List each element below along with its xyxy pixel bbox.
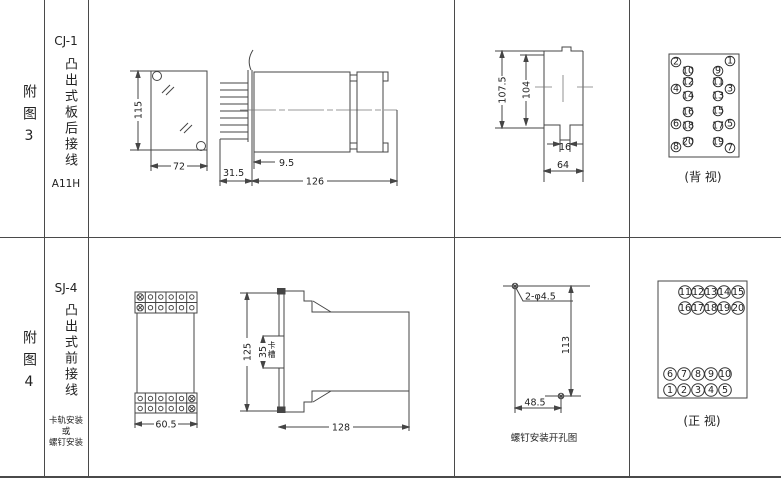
terminal-pin-number: 16 — [682, 106, 694, 117]
terminal-pin-number: 1 — [727, 55, 733, 66]
relay-case — [137, 313, 194, 393]
terminal-pin-number: 14 — [682, 90, 694, 101]
dim-125: 125 — [243, 343, 254, 361]
mounting-plate — [279, 291, 284, 412]
terminal-pin-number: 6 — [667, 369, 673, 380]
terminal-pin-number: 3 — [695, 385, 701, 396]
terminal-pin-number: 3 — [727, 83, 733, 94]
terminal-pin-number: 11 — [712, 76, 724, 87]
terminal-pin-number: 8 — [695, 369, 701, 380]
dim-126: 126 — [306, 177, 324, 188]
dim-16: 16 — [559, 142, 571, 153]
sj4-terminal-front-view: 1112131415161718192067891012345 — [658, 281, 747, 398]
terminal-pin-number: 5 — [722, 385, 728, 396]
screw-terminal-icon — [189, 395, 195, 401]
terminal-pin-number: 19 — [718, 303, 730, 314]
terminal-pin-number: 16 — [679, 303, 691, 314]
terminal-pin-number: 4 — [673, 83, 679, 94]
terminal-pin-number: 9 — [708, 369, 714, 380]
terminal-pin-group: 1112131415161718192067891012345 — [664, 286, 745, 397]
dim-104: 104 — [522, 81, 533, 99]
engineering-drawing-canvas: .dim{marker-start:url(#ar);marker-end:ur… — [0, 0, 781, 482]
terminal-pin-number: 19 — [712, 136, 724, 147]
terminal-pin-number: 7 — [727, 142, 733, 153]
terminal-pin-number: 5 — [727, 118, 733, 129]
figure-sheet: 附图3 CJ-1 凸出式板后接线 A11H (背 视) 附图4 SJ-4 凸出式… — [0, 0, 781, 482]
terminal-pin-number: 6 — [673, 118, 679, 129]
terminal-pin-number: 17 — [712, 120, 724, 131]
cj1-side-view-drawing: 9.5 31.5 126 — [220, 50, 397, 188]
terminal-pin-group: 2110912114314131615651817201987 — [671, 55, 735, 153]
dim-115: 115 — [134, 101, 145, 119]
dim-35: 35 — [258, 346, 269, 358]
dim-31p5: 31.5 — [223, 168, 244, 179]
dim-128: 128 — [332, 423, 350, 434]
terminal-pin-number: 2 — [681, 385, 687, 396]
mounting-flange — [248, 70, 252, 142]
terminal-pin-number: 10 — [682, 65, 694, 76]
dim-72: 72 — [173, 162, 185, 173]
terminal-pin-number: 10 — [719, 369, 731, 380]
terminal-pin-number: 15 — [712, 105, 724, 116]
glass-hatch-marks — [162, 85, 192, 133]
terminal-pin-number: 2 — [673, 56, 679, 67]
terminal-pin-number: 11 — [679, 287, 691, 298]
relay-body — [254, 72, 350, 152]
terminal-pin-number: 9 — [715, 65, 721, 76]
terminal-pin-number: 18 — [705, 303, 717, 314]
dim-113: 113 — [561, 336, 572, 354]
terminal-pin-number: 13 — [705, 287, 717, 298]
terminal-pin-number: 8 — [673, 141, 679, 152]
terminal-pin-number: 12 — [692, 287, 704, 298]
dim-64: 64 — [557, 160, 569, 171]
terminal-pin-number: 20 — [732, 303, 744, 314]
terminal-pin-number: 7 — [681, 369, 687, 380]
terminal-pin-number: 1 — [667, 385, 673, 396]
terminal-pin-number: 20 — [682, 136, 694, 147]
terminal-pin-number: 17 — [692, 303, 704, 314]
hole-spec-label: 2-φ4.5 — [525, 292, 556, 303]
dim-107p5: 107.5 — [498, 76, 509, 103]
screw-terminal-icon — [137, 294, 143, 300]
cj1-front-view-drawing: 115 72 — [130, 71, 207, 173]
terminal-pin-number: 4 — [708, 385, 714, 396]
sj4-side-view-drawing: 35 125 128 — [240, 289, 409, 434]
socket-base — [357, 72, 383, 152]
retaining-clip — [249, 50, 253, 70]
terminal-pin-number: 14 — [718, 287, 730, 298]
cj1-panel-cutout-drawing: 107.5 104 16 64 — [495, 47, 593, 182]
terminal-pin-number: 13 — [712, 90, 724, 101]
screw-terminal-icon — [189, 405, 195, 411]
dim-9p5: 9.5 — [279, 158, 294, 169]
terminal-pin-number: 18 — [682, 120, 694, 131]
dim-48p5: 48.5 — [524, 398, 545, 409]
terminal-pin-number: 12 — [682, 76, 694, 87]
rail-slot — [276, 336, 284, 368]
sj4-drill-hole-drawing: 2-φ4.5 113 48.5 — [503, 283, 590, 413]
relay-body-outline — [284, 291, 409, 412]
cj1-terminal-back-view: 2110912114314131615651817201987 — [669, 54, 739, 157]
dim-60p5: 60.5 — [155, 420, 176, 431]
screw-terminal-icon — [137, 305, 143, 311]
terminal-pins — [220, 83, 248, 139]
terminal-pin-number: 15 — [732, 287, 744, 298]
sj4-front-view-drawing: 60.5 — [135, 292, 197, 431]
